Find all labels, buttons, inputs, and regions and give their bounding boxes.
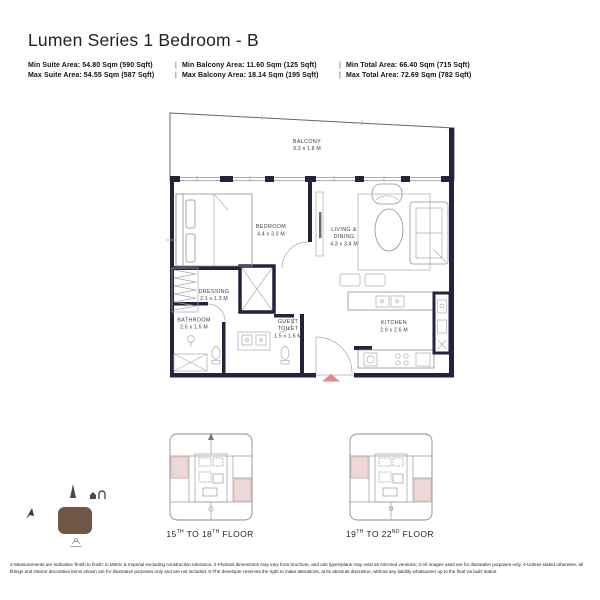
area-stats: Min Suite Area: 54.80 Sqm (590 Sqft) | M…	[28, 62, 471, 79]
bedroom-label: BEDROOM	[256, 224, 286, 230]
fountain-icon	[71, 538, 82, 546]
bathroom-fixtures	[174, 336, 220, 371]
highlighted-unit-right	[414, 479, 431, 501]
balcony-label: BALCONY	[293, 139, 321, 145]
max-suite-area: Max Suite Area: 54.55 Sqm (587 Sqft)	[28, 72, 170, 79]
min-balcony-area: Min Balcony Area: 11.60 Sqm (125 Sqft)	[182, 62, 334, 69]
north-arrow-icon	[26, 508, 34, 519]
kitchen-label: KITCHEN	[381, 320, 407, 326]
location-map	[24, 482, 114, 557]
kitchen-dims: 2.9 x 2.6 M	[380, 328, 408, 334]
bed	[176, 194, 252, 266]
arch-landmark-icon	[99, 491, 105, 499]
separator: |	[170, 62, 182, 69]
dressing-label: DRESSING	[199, 289, 230, 295]
key-plan-15-18	[165, 430, 257, 531]
disclaimer-text: 1-Measurements are indicative 'finish to…	[10, 562, 592, 576]
brochure-page: Lumen Series 1 Bedroom - B Min Suite Are…	[0, 0, 600, 600]
guest-toilet-label-1: GUEST	[278, 319, 299, 325]
balcony-dims: 9.3 x 1.8 M	[293, 146, 321, 152]
floor-range-label-1: 15TH TO 18TH FLOOR	[140, 529, 280, 539]
bathroom-label: BATHROOM	[177, 318, 211, 324]
dressing-dims: 2.1 x 1.3 M	[200, 296, 228, 302]
bedroom-dims: 4.4 x 3.0 M	[257, 232, 285, 238]
core	[375, 454, 407, 502]
min-total-area: Min Total Area: 66.40 Sqm (715 Sqft)	[346, 62, 471, 69]
separator: |	[170, 72, 182, 79]
max-total-area: Max Total Area: 72.69 Sqm (782 Sqft)	[346, 72, 471, 79]
max-balcony-area: Max Balcony Area: 18.14 Sqm (195 Sqft)	[182, 72, 334, 79]
shaft	[240, 266, 274, 312]
site-marker	[58, 507, 92, 534]
floor-range-label-2: 19TH TO 22ND FLOOR	[320, 529, 460, 539]
core	[195, 454, 227, 502]
living-dining-dims: 4.3 x 3.4 M	[330, 242, 358, 248]
max-areas-row: Max Suite Area: 54.55 Sqm (587 Sqft) | M…	[28, 72, 471, 79]
highlighted-unit-left	[171, 457, 188, 478]
bathroom-dims: 2.5 x 1.5 M	[180, 325, 208, 331]
key-plan-drawing	[165, 430, 257, 526]
living-dining-label-1: LIVING &	[331, 227, 357, 233]
building-landmark-icon	[90, 492, 96, 499]
key-plan-drawing	[345, 430, 437, 526]
guest-toilet-dims: 1.5 x 1.6 M	[274, 334, 302, 340]
separator: |	[334, 62, 346, 69]
location-map-drawing	[24, 482, 114, 552]
spire-landmark-icon	[70, 484, 76, 498]
min-areas-row: Min Suite Area: 54.80 Sqm (590 Sqft) | M…	[28, 62, 471, 69]
page-title: Lumen Series 1 Bedroom - B	[28, 30, 259, 51]
highlighted-unit-right	[234, 479, 251, 501]
highlighted-unit-left	[351, 457, 368, 478]
living-dining-label-2: DINING	[334, 234, 355, 240]
doors	[208, 242, 352, 373]
key-plan-19-22	[345, 430, 437, 531]
min-suite-area: Min Suite Area: 54.80 Sqm (590 Sqft)	[28, 62, 170, 69]
separator: |	[334, 72, 346, 79]
floor-plan-drawing: BALCONY 9.3 x 1.8 M BEDROOM 4.4 x 3.0 M …	[162, 110, 458, 382]
floor-plan: BALCONY 9.3 x 1.8 M BEDROOM 4.4 x 3.0 M …	[162, 110, 458, 387]
guest-toilet-label-2: TOILET	[278, 326, 299, 332]
